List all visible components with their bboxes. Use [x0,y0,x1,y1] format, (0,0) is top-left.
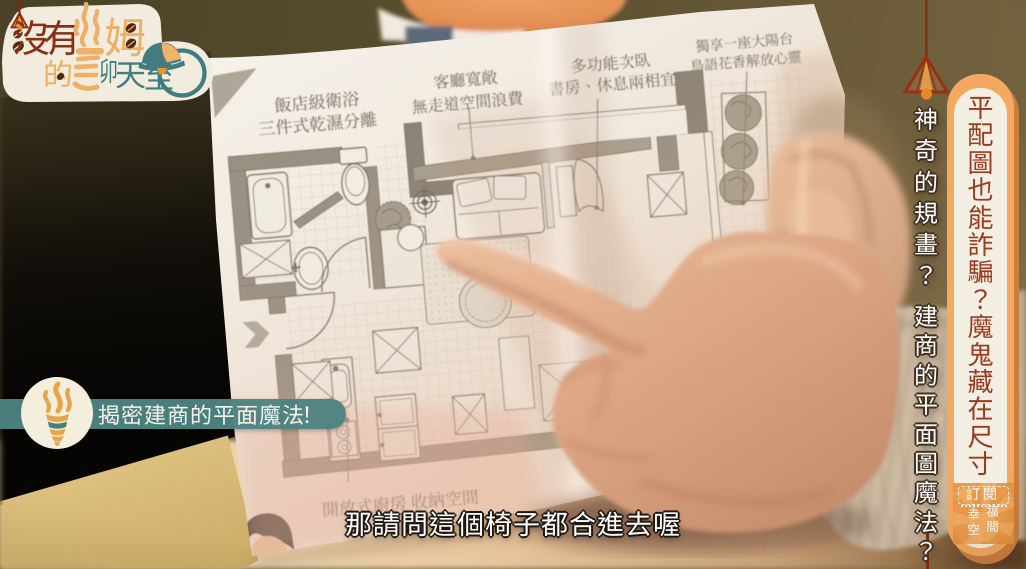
svg-text:的: 的 [43,50,73,94]
svg-text:天: 天 [115,50,146,95]
